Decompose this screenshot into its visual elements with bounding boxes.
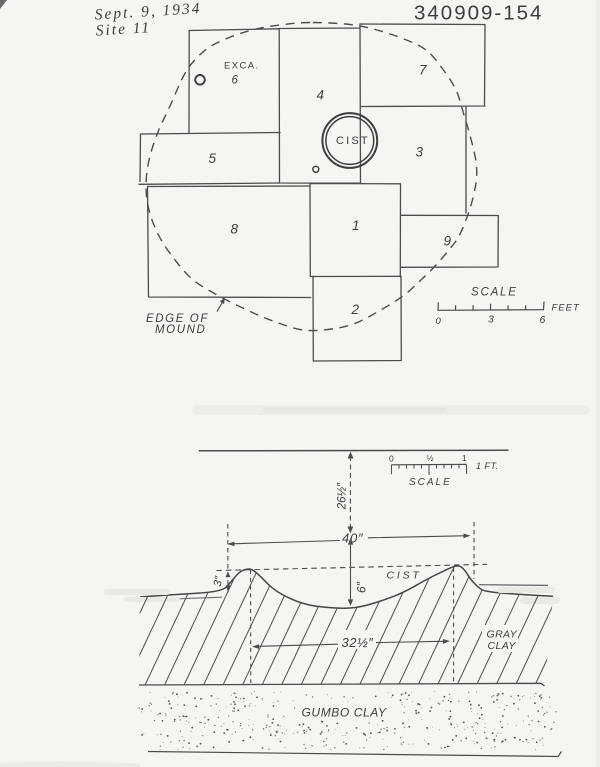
svg-text:40″: 40″ (342, 531, 363, 546)
svg-text:5: 5 (209, 151, 217, 166)
svg-text:1: 1 (462, 453, 467, 463)
svg-text:FEET: FEET (552, 303, 580, 314)
svg-text:32½″: 32½″ (342, 635, 374, 650)
svg-text:EXCA.: EXCA. (224, 61, 260, 72)
svg-text:CLAY: CLAY (488, 640, 517, 652)
svg-text:2: 2 (351, 302, 360, 317)
svg-text:CIST: CIST (336, 135, 370, 147)
svg-text:MOUND: MOUND (155, 324, 206, 336)
svg-text:½: ½ (427, 453, 434, 463)
svg-text:0: 0 (389, 454, 394, 464)
svg-text:1: 1 (352, 218, 360, 233)
svg-text:GRAY: GRAY (487, 629, 518, 641)
svg-text:1 FT.: 1 FT. (476, 461, 499, 471)
svg-text:Site 11: Site 11 (95, 19, 151, 39)
svg-text:26½″: 26½″ (337, 482, 349, 510)
svg-text:6: 6 (232, 75, 239, 87)
svg-text:340909-154: 340909-154 (414, 2, 543, 25)
svg-text:GUMBO CLAY: GUMBO CLAY (302, 706, 388, 720)
svg-text:3: 3 (416, 145, 424, 160)
svg-text:SCALE: SCALE (409, 477, 452, 488)
svg-text:3: 3 (488, 314, 494, 326)
svg-text:CIST: CIST (387, 570, 422, 582)
svg-text:6″: 6″ (355, 581, 369, 593)
svg-text:4: 4 (317, 88, 325, 103)
svg-text:8: 8 (231, 222, 239, 237)
svg-text:SCALE: SCALE (471, 287, 518, 299)
svg-text:9: 9 (444, 234, 452, 249)
svg-text:7: 7 (419, 63, 427, 78)
svg-text:6: 6 (540, 314, 546, 326)
svg-text:0: 0 (436, 316, 442, 327)
